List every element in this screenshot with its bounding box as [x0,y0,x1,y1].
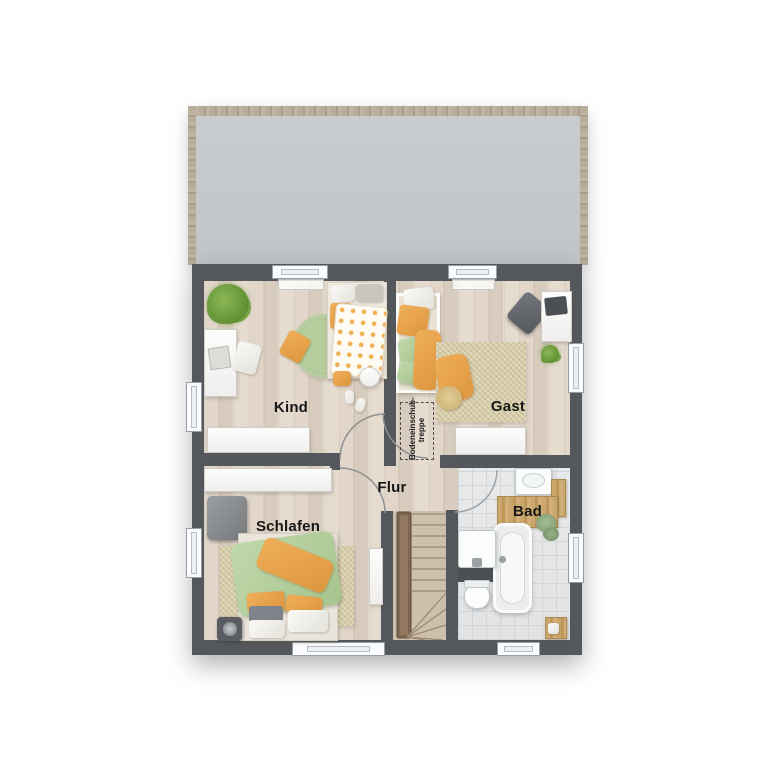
schlafen-wardrobe [204,468,332,492]
bad-bathtub [493,523,532,613]
kind-slipper-left [345,390,354,404]
kind-ottoman [333,371,351,386]
schlafen-south-window [292,642,385,656]
kind-side-table [359,367,380,387]
gast-plant [541,345,559,363]
window-glass [307,646,371,651]
gast-north-window-sill [452,279,495,290]
window-glass [573,347,579,389]
kind-plant [207,284,249,324]
kind-duvet-patterned [330,303,388,379]
bad-east-window [568,533,584,583]
gast-laptop [544,296,568,316]
attic-stairs-hatch: Bodeneinschub- treppe [400,402,434,460]
bad-washbasin-bowl [522,473,545,488]
kind-door-arc [340,414,385,459]
gast-label: Gast [478,398,538,415]
window-glass [573,537,579,579]
bad-bathtub-inner [500,532,525,604]
kind-bed-pillow [330,284,356,303]
kind-bed-pillow-gray [356,284,383,302]
flur-label: Flur [362,479,422,496]
gast-east-window [568,343,584,393]
bad-south-window [497,642,540,656]
bad-toilet-tank [464,580,490,588]
floorplan-canvas: Bodeneinschub- treppe [0,0,775,775]
bad-vanity-faucet [472,558,482,567]
bad-towel-green2 [543,527,559,541]
window-glass [504,646,533,651]
kind-west-window [186,382,202,432]
schlafen-label: Schlafen [228,518,348,535]
kind-north-window-sill [278,279,324,290]
bad-label: Bad [497,503,558,520]
kind-north-window [272,265,328,279]
bad-door-arc [455,470,497,512]
schlafen-pillow-white2 [249,620,285,638]
gast-pouf [436,386,462,410]
staircase [393,511,446,640]
window-glass [281,269,319,274]
window-glass [191,386,197,428]
kind-laptop [208,346,232,371]
attic-stairs-label: Bodeneinschub- treppe [408,400,426,460]
window-glass [456,269,489,274]
kind-wardrobe [207,427,310,453]
stair-balustrade-top [400,515,408,635]
schlafen-pillow-white [288,610,328,632]
gast-north-window [448,265,497,279]
kind-label: Kind [261,399,321,416]
bad-stool-towel [548,623,559,634]
window-glass [191,532,197,574]
gast-sideboard [455,427,526,455]
schlafen-speaker-cone [223,622,237,636]
bad-bathtub-faucet [499,556,506,563]
schlafen-dresser [369,548,383,605]
schlafen-west-window [186,528,202,578]
door-arcs [0,0,775,775]
